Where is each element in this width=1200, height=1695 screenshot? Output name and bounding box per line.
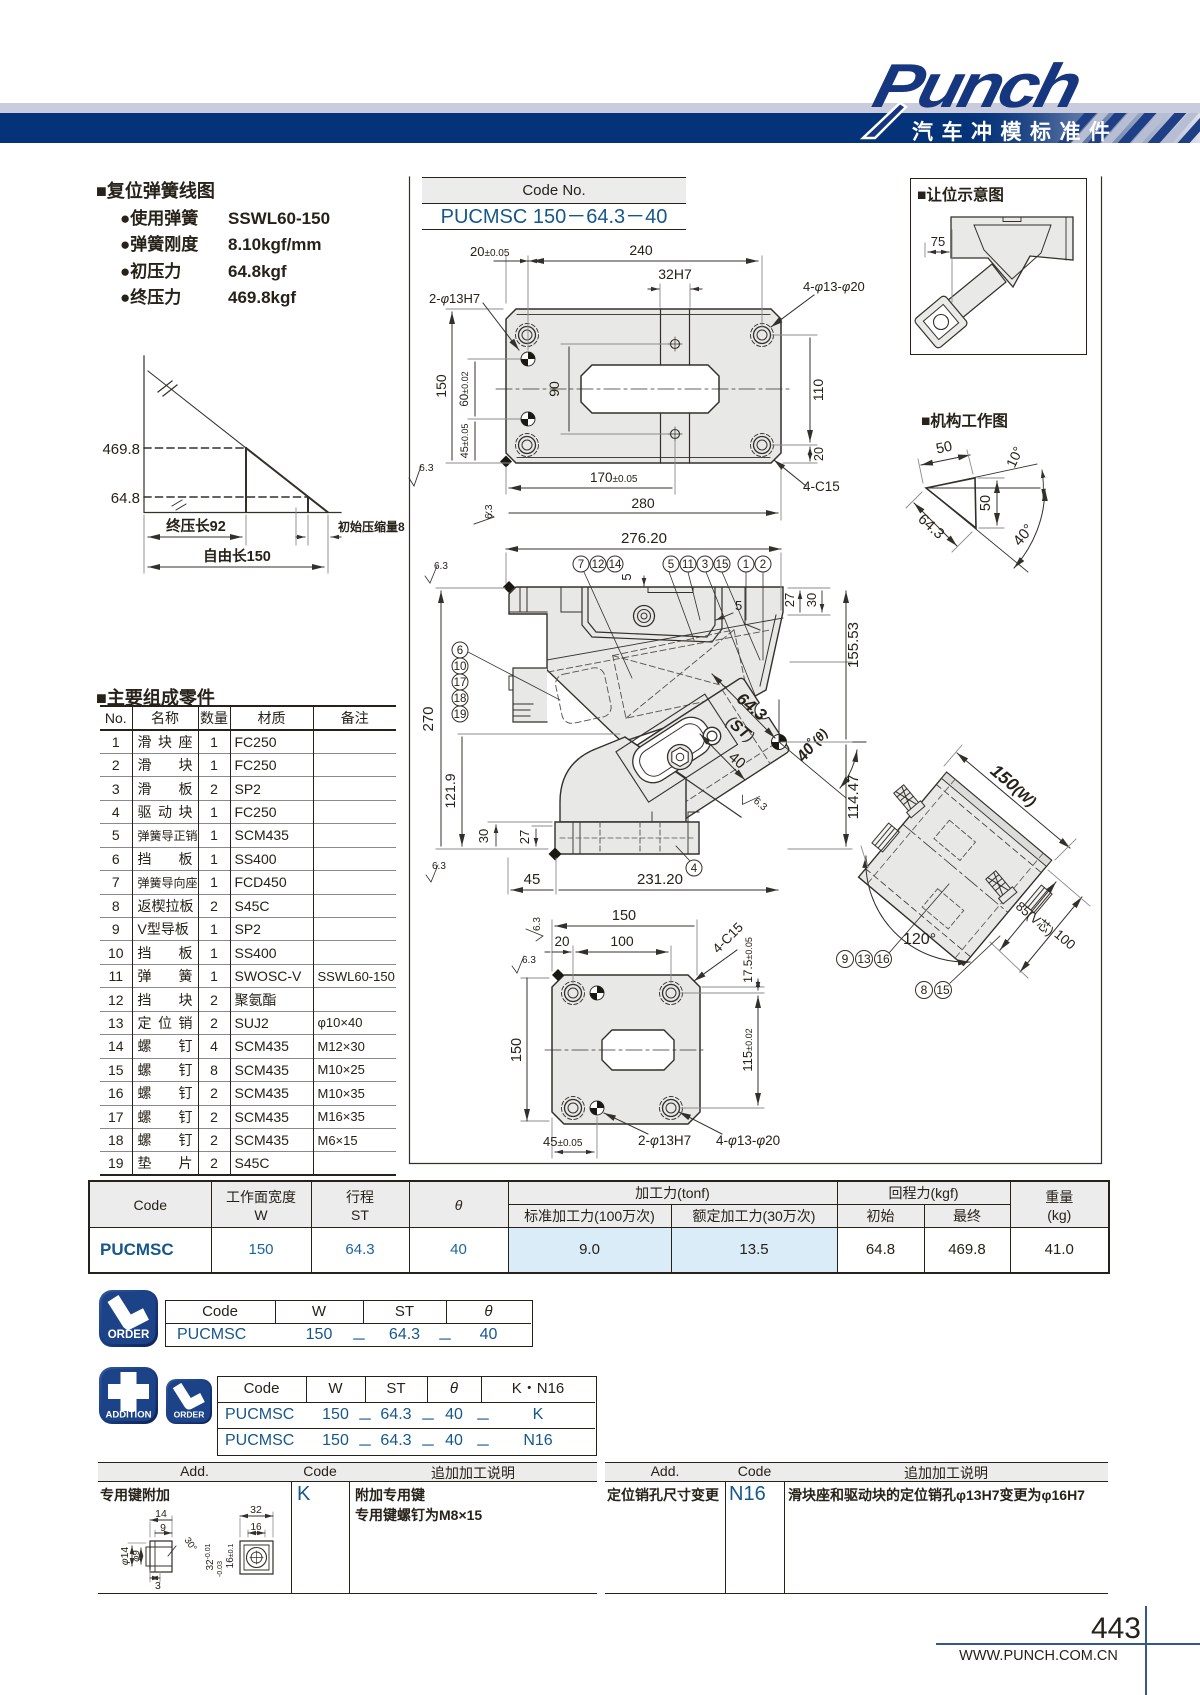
svg-text:231.20: 231.20 xyxy=(637,871,683,888)
svg-text:100: 100 xyxy=(610,933,634,949)
svg-text:120°: 120° xyxy=(903,931,936,948)
svg-text:170±0.05: 170±0.05 xyxy=(590,470,638,485)
svg-text:114.47: 114.47 xyxy=(845,775,862,820)
svg-text:45±0.05: 45±0.05 xyxy=(543,1134,583,1149)
svg-text:终压长92: 终压长92 xyxy=(166,517,226,535)
svg-text:6.3: 6.3 xyxy=(532,917,543,931)
svg-text:5: 5 xyxy=(619,573,634,580)
svg-text:90: 90 xyxy=(546,381,562,397)
svg-text:4: 4 xyxy=(691,863,698,875)
svg-text:5: 5 xyxy=(735,598,742,613)
svg-text:45: 45 xyxy=(524,871,541,888)
svg-text:469.8: 469.8 xyxy=(102,441,140,458)
svg-text:30: 30 xyxy=(476,829,491,843)
svg-text:19: 19 xyxy=(454,709,467,721)
svg-text:155.53: 155.53 xyxy=(845,622,862,668)
svg-text:45±0.05: 45±0.05 xyxy=(459,424,471,459)
svg-text:10: 10 xyxy=(454,661,467,673)
svg-text:150: 150 xyxy=(433,374,449,398)
svg-text:270: 270 xyxy=(420,706,437,731)
svg-text:2: 2 xyxy=(760,559,766,571)
svg-text:6.3: 6.3 xyxy=(432,861,446,872)
svg-text:ORDER: ORDER xyxy=(108,1329,150,1341)
svg-text:150: 150 xyxy=(612,908,636,924)
svg-text:1: 1 xyxy=(743,559,749,571)
svg-text:20±0.05: 20±0.05 xyxy=(470,244,510,259)
svg-text:20: 20 xyxy=(554,934,569,949)
svg-text:64.3: 64.3 xyxy=(914,511,947,543)
svg-text:4-C15: 4-C15 xyxy=(710,920,747,957)
svg-text:13: 13 xyxy=(857,952,871,966)
svg-text:240: 240 xyxy=(629,242,653,258)
svg-text:4-C15: 4-C15 xyxy=(803,479,840,494)
svg-text:12: 12 xyxy=(592,559,605,571)
svg-text:150: 150 xyxy=(509,1038,525,1062)
svg-text:32H7: 32H7 xyxy=(658,266,692,282)
svg-text:15: 15 xyxy=(716,559,729,571)
svg-text:2-φ13H7: 2-φ13H7 xyxy=(638,1133,691,1148)
svg-text:40°(θ): 40°(θ) xyxy=(792,724,831,766)
svg-text:40°: 40° xyxy=(1010,521,1038,549)
svg-text:20: 20 xyxy=(812,447,826,461)
svg-text:14: 14 xyxy=(609,559,622,571)
svg-text:11: 11 xyxy=(682,559,694,571)
svg-text:16: 16 xyxy=(876,952,890,966)
svg-text:9: 9 xyxy=(842,952,849,966)
svg-text:17.5±0.05: 17.5±0.05 xyxy=(741,937,755,983)
svg-text:100: 100 xyxy=(1051,927,1078,953)
svg-text:6.3: 6.3 xyxy=(434,561,448,572)
svg-text:121.9: 121.9 xyxy=(442,773,458,808)
svg-text:5: 5 xyxy=(668,559,674,571)
svg-text:15: 15 xyxy=(936,983,950,997)
svg-text:初始压缩量8: 初始压缩量8 xyxy=(338,519,405,534)
svg-text:18: 18 xyxy=(454,693,467,705)
svg-text:60±0.02: 60±0.02 xyxy=(459,371,471,406)
svg-text:自由长150: 自由长150 xyxy=(203,547,271,565)
svg-text:7: 7 xyxy=(578,559,584,571)
svg-text:50: 50 xyxy=(978,495,994,511)
svg-text:27: 27 xyxy=(782,593,797,607)
svg-text:17: 17 xyxy=(454,677,467,689)
svg-text:3: 3 xyxy=(702,559,708,571)
svg-text:276.20: 276.20 xyxy=(621,530,667,547)
svg-text:ORDER: ORDER xyxy=(174,1410,205,1420)
svg-text:115±0.02: 115±0.02 xyxy=(740,1028,755,1071)
svg-text:280: 280 xyxy=(631,495,655,511)
svg-text:2-φ13H7: 2-φ13H7 xyxy=(429,291,480,306)
svg-text:6.3: 6.3 xyxy=(751,796,769,814)
svg-text:6.3: 6.3 xyxy=(419,462,434,474)
svg-text:4-φ13-φ20: 4-φ13-φ20 xyxy=(716,1133,780,1148)
svg-text:10°: 10° xyxy=(1003,444,1026,470)
svg-text:64.8: 64.8 xyxy=(111,490,140,507)
svg-text:8: 8 xyxy=(921,983,928,997)
svg-text:30: 30 xyxy=(804,593,819,607)
svg-text:110: 110 xyxy=(810,379,826,402)
svg-text:27: 27 xyxy=(517,830,532,844)
svg-text:6: 6 xyxy=(457,645,463,657)
svg-text:4-φ13-φ20: 4-φ13-φ20 xyxy=(803,279,865,294)
svg-text:ADDITION: ADDITION xyxy=(106,1410,152,1421)
svg-text:50: 50 xyxy=(935,439,954,458)
